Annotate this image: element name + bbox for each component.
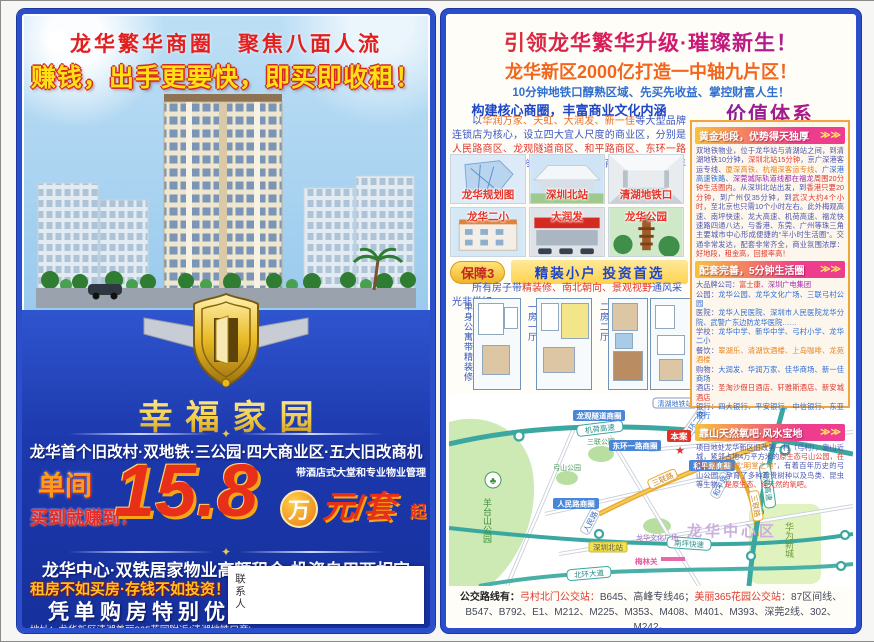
label-meilin-checkpoint: 梅林关: [635, 556, 658, 566]
slogan-top: 龙华繁华商圈 聚焦八面人流: [22, 28, 430, 58]
flyer-canvas: ✹ 龙华繁华商圈 聚焦八面人流 赚钱，出手更要快，即买即收租！: [0, 0, 874, 642]
tag-renmin-biz: 人民路商圈: [557, 499, 595, 509]
price-qi: 起: [410, 498, 426, 522]
price-wan-circle: 万: [280, 490, 318, 528]
value-section-header-location: 黄金地段，优势得天独厚 ≫≫: [695, 127, 845, 144]
bus-routes: 公交路线有：弓村北门公交站：B645、高峰专线46；美丽365花园公交站：87区…: [454, 590, 848, 633]
section-header-text: 靠山天然氧吧·风水宝地: [699, 425, 802, 440]
photo-school: 龙华二小: [450, 207, 526, 257]
gold-shield-emblem: [138, 290, 314, 390]
chevron-arrows-icon: ≫≫: [820, 130, 841, 141]
building-illustration: [36, 88, 416, 308]
price-block: 单间 买到就赚到！ 15.8 万 元/套 起 带酒店式大堂和专业物业管理: [22, 464, 430, 546]
value-section-body-amenities: 大品牌公司：富士康、深圳广电集团 公园：龙华公园、龙华文化广场、三联弓村公园 医…: [696, 280, 844, 420]
tag-qinghu-metro: 清湖地铁站: [658, 399, 693, 408]
label-culture-plaza: 龙华文化广场: [636, 533, 678, 542]
label-longhua-district: 龙华中心区: [686, 522, 777, 540]
contact-label: 联系人: [233, 573, 248, 611]
tree-icon: ♣: [490, 476, 497, 487]
tag-longguan-biz: 龙观隧道商圈: [577, 411, 622, 421]
site-star-icon: ★: [675, 445, 685, 457]
section-header-text: 配套完善，5分钟生活圈: [699, 262, 805, 277]
value-section-body-nature: 项目地处龙华新区旧改第一村（弓村），靠山近城，紧邻占地4万平方米的原生态弓山公园…: [696, 443, 844, 490]
value-system-box: 黄金地段，优势得天独厚 ≫≫ 双地铁物业，位于龙华站与清湖站之间，到清湖地铁10…: [690, 120, 850, 408]
chevron-arrows-icon: ≫≫: [820, 427, 841, 438]
tag-donghuan-biz: 东环一路商圈: [613, 441, 658, 451]
price-unit: 元/套: [322, 482, 395, 528]
right-page: 引领龙华繁华升级·璀璨新生！ 龙华新区2000亿打造一中轴九片区！ 10分钟地铁…: [441, 9, 861, 633]
photo-planning-map: 龙华规划图: [450, 154, 526, 204]
headline: 引领龙华繁华升级·璀璨新生！: [446, 27, 856, 57]
floorplan-studio: [473, 298, 521, 390]
floorplan-extra: [650, 298, 692, 390]
photo-supermarket: 大润发: [529, 207, 605, 257]
photo-north-station: 深圳北站: [529, 154, 605, 204]
label-yangtai-park: 羊台山公园: [482, 497, 492, 544]
subheadline: 龙华新区2000亿打造一中轴九片区！: [446, 58, 856, 84]
label-huawei-zone: 华为新城: [784, 521, 794, 559]
value-section-body-location: 双地铁物业，位于龙华站与清湖站之间，到清湖地铁10分钟，深圳北站15分钟，京广深…: [696, 146, 844, 258]
tag-project-site: 本案: [670, 432, 688, 442]
photo-metro-entrance: 清湖地铁口: [608, 154, 684, 204]
guarantee-row: 保障3 精装小户 投资首选: [450, 260, 688, 284]
floorplan-row: 单身公寓带精装修 一房一厅 二房二厅: [448, 298, 690, 392]
contact-box: 联系人: [228, 566, 424, 624]
label-gongshan-park: 弓山公园: [553, 463, 581, 472]
price-number: 15.8: [114, 448, 258, 533]
address-line: 地址：龙华新区清湖美丽365花园附近(清湖地铁口旁): [30, 622, 252, 633]
unit-label: 单间: [38, 464, 92, 503]
floorplan-2b2l: [608, 298, 648, 390]
value-section-header-nature: 靠山天然氧吧·风水宝地 ≫≫: [695, 424, 845, 441]
location-map: 机荷高速 梅观高速 南坪快速 北环大道 三联路 三联路 东环二路 人民路 和平路…: [449, 394, 853, 586]
photo-caption: 龙华规划图: [451, 187, 525, 202]
guarantee-title: 精装小户 投资首选: [511, 260, 688, 284]
left-page: ✹ 龙华繁华商圈 聚焦八面人流 赚钱，出手更要快，即买即收租！: [17, 9, 435, 633]
floorplan-1b1l: [536, 298, 592, 390]
guarantee-badge: 保障3: [450, 261, 505, 284]
photo-caption: 大润发: [530, 209, 604, 224]
photo-caption: 深圳北站: [530, 187, 604, 202]
chevron-arrows-icon: ≫≫: [820, 264, 841, 275]
tag-north-station: 深圳北站: [593, 542, 623, 552]
photo-grid: 龙华规划图 深圳北站 清湖地铁口 龙华二小 大润发 龙华公园: [450, 154, 688, 257]
section-header-text: 黄金地段，优势得天独厚: [699, 128, 809, 143]
photo-caption: 龙华公园: [609, 209, 683, 224]
photo-caption: 龙华二小: [451, 209, 525, 224]
photo-park-pagoda: 龙华公园: [608, 207, 684, 257]
ornament-icon: ✦: [221, 428, 231, 440]
value-section-header-amenities: 配套完善，5分钟生活圈 ≫≫: [695, 261, 845, 278]
divider-ornament: ✦: [68, 428, 384, 440]
price-note: 带酒店式大堂和专业物业管理: [296, 464, 426, 479]
photo-caption: 清湖地铁口: [609, 187, 683, 202]
